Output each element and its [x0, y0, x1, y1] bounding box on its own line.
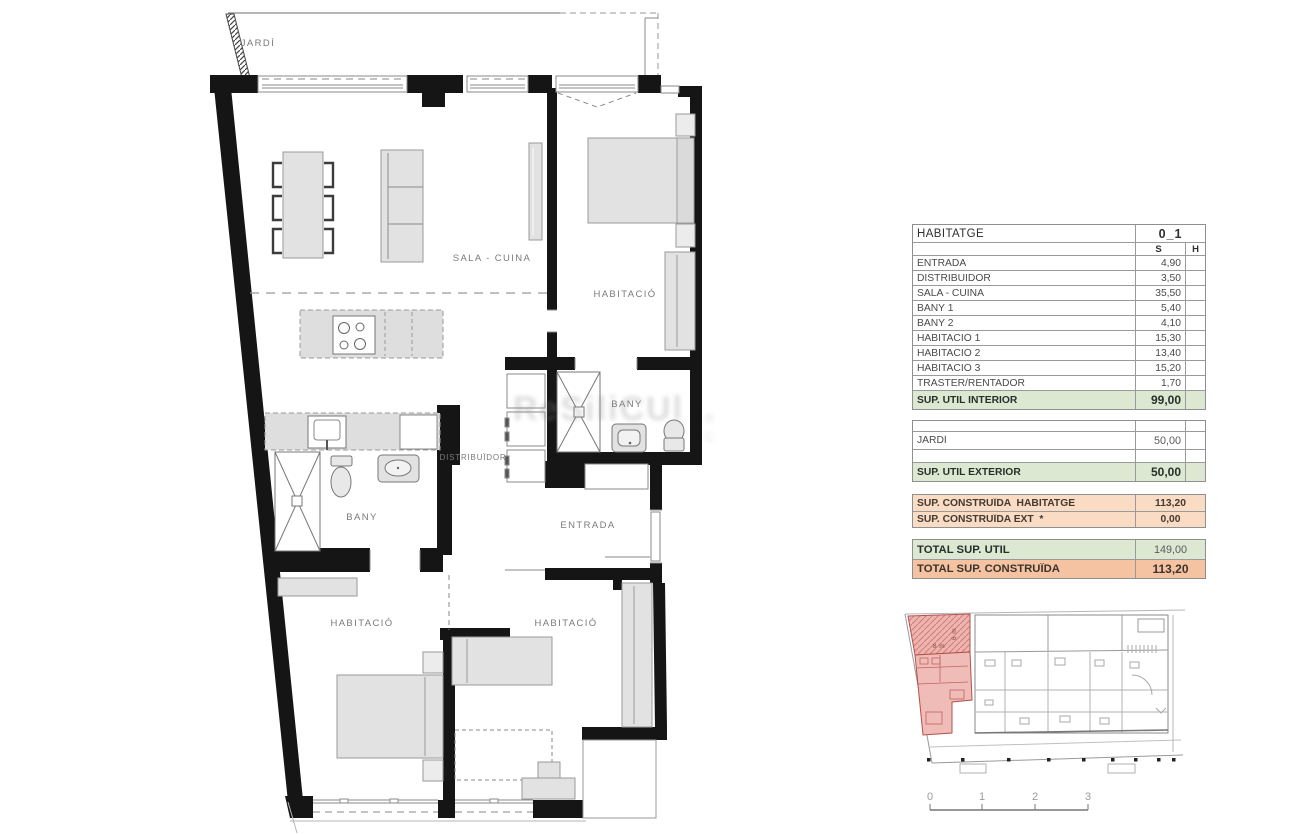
bed-double [337, 675, 443, 758]
col-h-header: H [1185, 243, 1205, 255]
total-construida-row: TOTAL SUP. CONSTRUÏDA 113,20 [913, 559, 1205, 578]
table-subheader-row: S H [913, 242, 1205, 255]
sala-cuina-furniture: SALA - CUINA [250, 143, 547, 450]
bedroom-br-label: HABITACIÓ [534, 618, 597, 629]
scale-bar: 0 1 2 3 [927, 791, 1091, 810]
table-row: HABITACIÓ 3 15,20 [913, 360, 1205, 375]
storage-closets [505, 374, 545, 482]
floor-plan-canvas: JARDÍ [0, 0, 1300, 834]
area-table-exterior: JARDÍ 50,00 SUP. UTIL EXTERIOR 50,00 [912, 420, 1206, 482]
bedroom-bl-label: HABITACIÓ [330, 618, 393, 629]
scale-2: 2 [1032, 791, 1038, 803]
table-row: TRASTER/RENTADOR 1,70 [913, 375, 1205, 390]
sup-util-exterior-row: SUP. UTIL EXTERIOR 50,00 [913, 462, 1205, 481]
sup-util-interior-row: SUP. UTIL INTERIOR 99,00 [913, 390, 1205, 409]
table-row: SALA - CUINA 35,50 [913, 285, 1205, 300]
toilet [664, 420, 684, 451]
table-row: ENTRADA 4,90 [913, 255, 1205, 270]
nightstand [423, 652, 443, 673]
bedroom-bottom-left: HABITACIÓ [278, 578, 443, 781]
dim-width-label: 8 m [933, 643, 945, 650]
total-util-row: TOTAL SUP. UTIL 149,00 [913, 540, 1205, 559]
sofa [381, 150, 423, 262]
bedroom-top-label: HABITACIÓ [593, 289, 656, 300]
kitchen-cabinet [400, 415, 437, 449]
scale-3: 3 [1085, 791, 1091, 803]
bathroom-right-label: BANY [611, 399, 642, 410]
tv-unit [529, 143, 542, 240]
future-bed-outline [455, 730, 552, 780]
entrada-label: ENTRADA [560, 520, 615, 531]
col-s-header: S [1135, 243, 1185, 255]
sala-cuina-label: SALA - CUINA [453, 253, 532, 264]
nightstand [676, 224, 695, 247]
spacer-row [913, 449, 1205, 462]
keyplan-columns [927, 758, 1176, 762]
bathroom-left: BANY [275, 452, 419, 551]
table-title: HABITATGE [913, 228, 1135, 240]
kitchen-counter [265, 413, 440, 450]
cooktop [333, 316, 375, 354]
table-header-row: HABITATGE 0_1 [913, 225, 1205, 242]
wardrobe [622, 583, 652, 727]
construida-ext-row: SUP. CONSTRUÏDA EXT * 0,00 [913, 511, 1205, 527]
dining-table [283, 152, 323, 258]
side-box [538, 762, 560, 778]
area-table-interior: HABITATGE 0_1 S H ENTRADA 4,90 DISTRIBUI… [912, 224, 1206, 410]
jardi-row: JARDÍ 50,00 [913, 431, 1205, 449]
jardi-label: JARDÍ [241, 38, 275, 49]
keyplan: 8 m 6 m 0 1 2 3 [905, 610, 1185, 810]
table-row: BANY 2 4,10 [913, 315, 1205, 330]
area-table-totals: TOTAL SUP. UTIL 149,00 TOTAL SUP. CONSTR… [912, 539, 1206, 579]
desk [522, 778, 575, 799]
table-row: HABITACIÓ 1 15,30 [913, 330, 1205, 345]
table-row: HABITACIÓ 2 13,40 [913, 345, 1205, 360]
table-row: BANY 1 5,40 [913, 300, 1205, 315]
bedroom-top: HABITACIÓ [588, 114, 695, 350]
kitchen-island [300, 310, 443, 358]
construida-habitatge-row: SUP. CONSTRUÏDA HABITATGE 113,20 [913, 495, 1205, 511]
keyplan-highlight-unit: 8 m 6 m [908, 614, 972, 735]
bed-double-top [588, 138, 677, 223]
bathroom-right: BANY [557, 372, 684, 452]
table-row: DISTRIBUIDOR 3,50 [913, 270, 1205, 285]
shelf [278, 578, 357, 596]
spacer-row [913, 421, 1205, 431]
bathroom-left-label: BANY [346, 512, 377, 523]
nightstand [676, 114, 695, 136]
nightstand [423, 760, 443, 781]
area-table-construida: SUP. CONSTRUÏDA HABITATGE 113,20 SUP. CO… [912, 494, 1206, 528]
toilet [331, 456, 352, 497]
unit-id: 0_1 [1135, 225, 1205, 242]
wardrobe [665, 252, 695, 350]
distribuidor-label: DISTRIBUÏDOR [440, 453, 507, 462]
scale-0: 0 [927, 791, 933, 803]
dim-depth-label: 6 m [951, 628, 958, 640]
scale-1: 1 [979, 791, 985, 803]
